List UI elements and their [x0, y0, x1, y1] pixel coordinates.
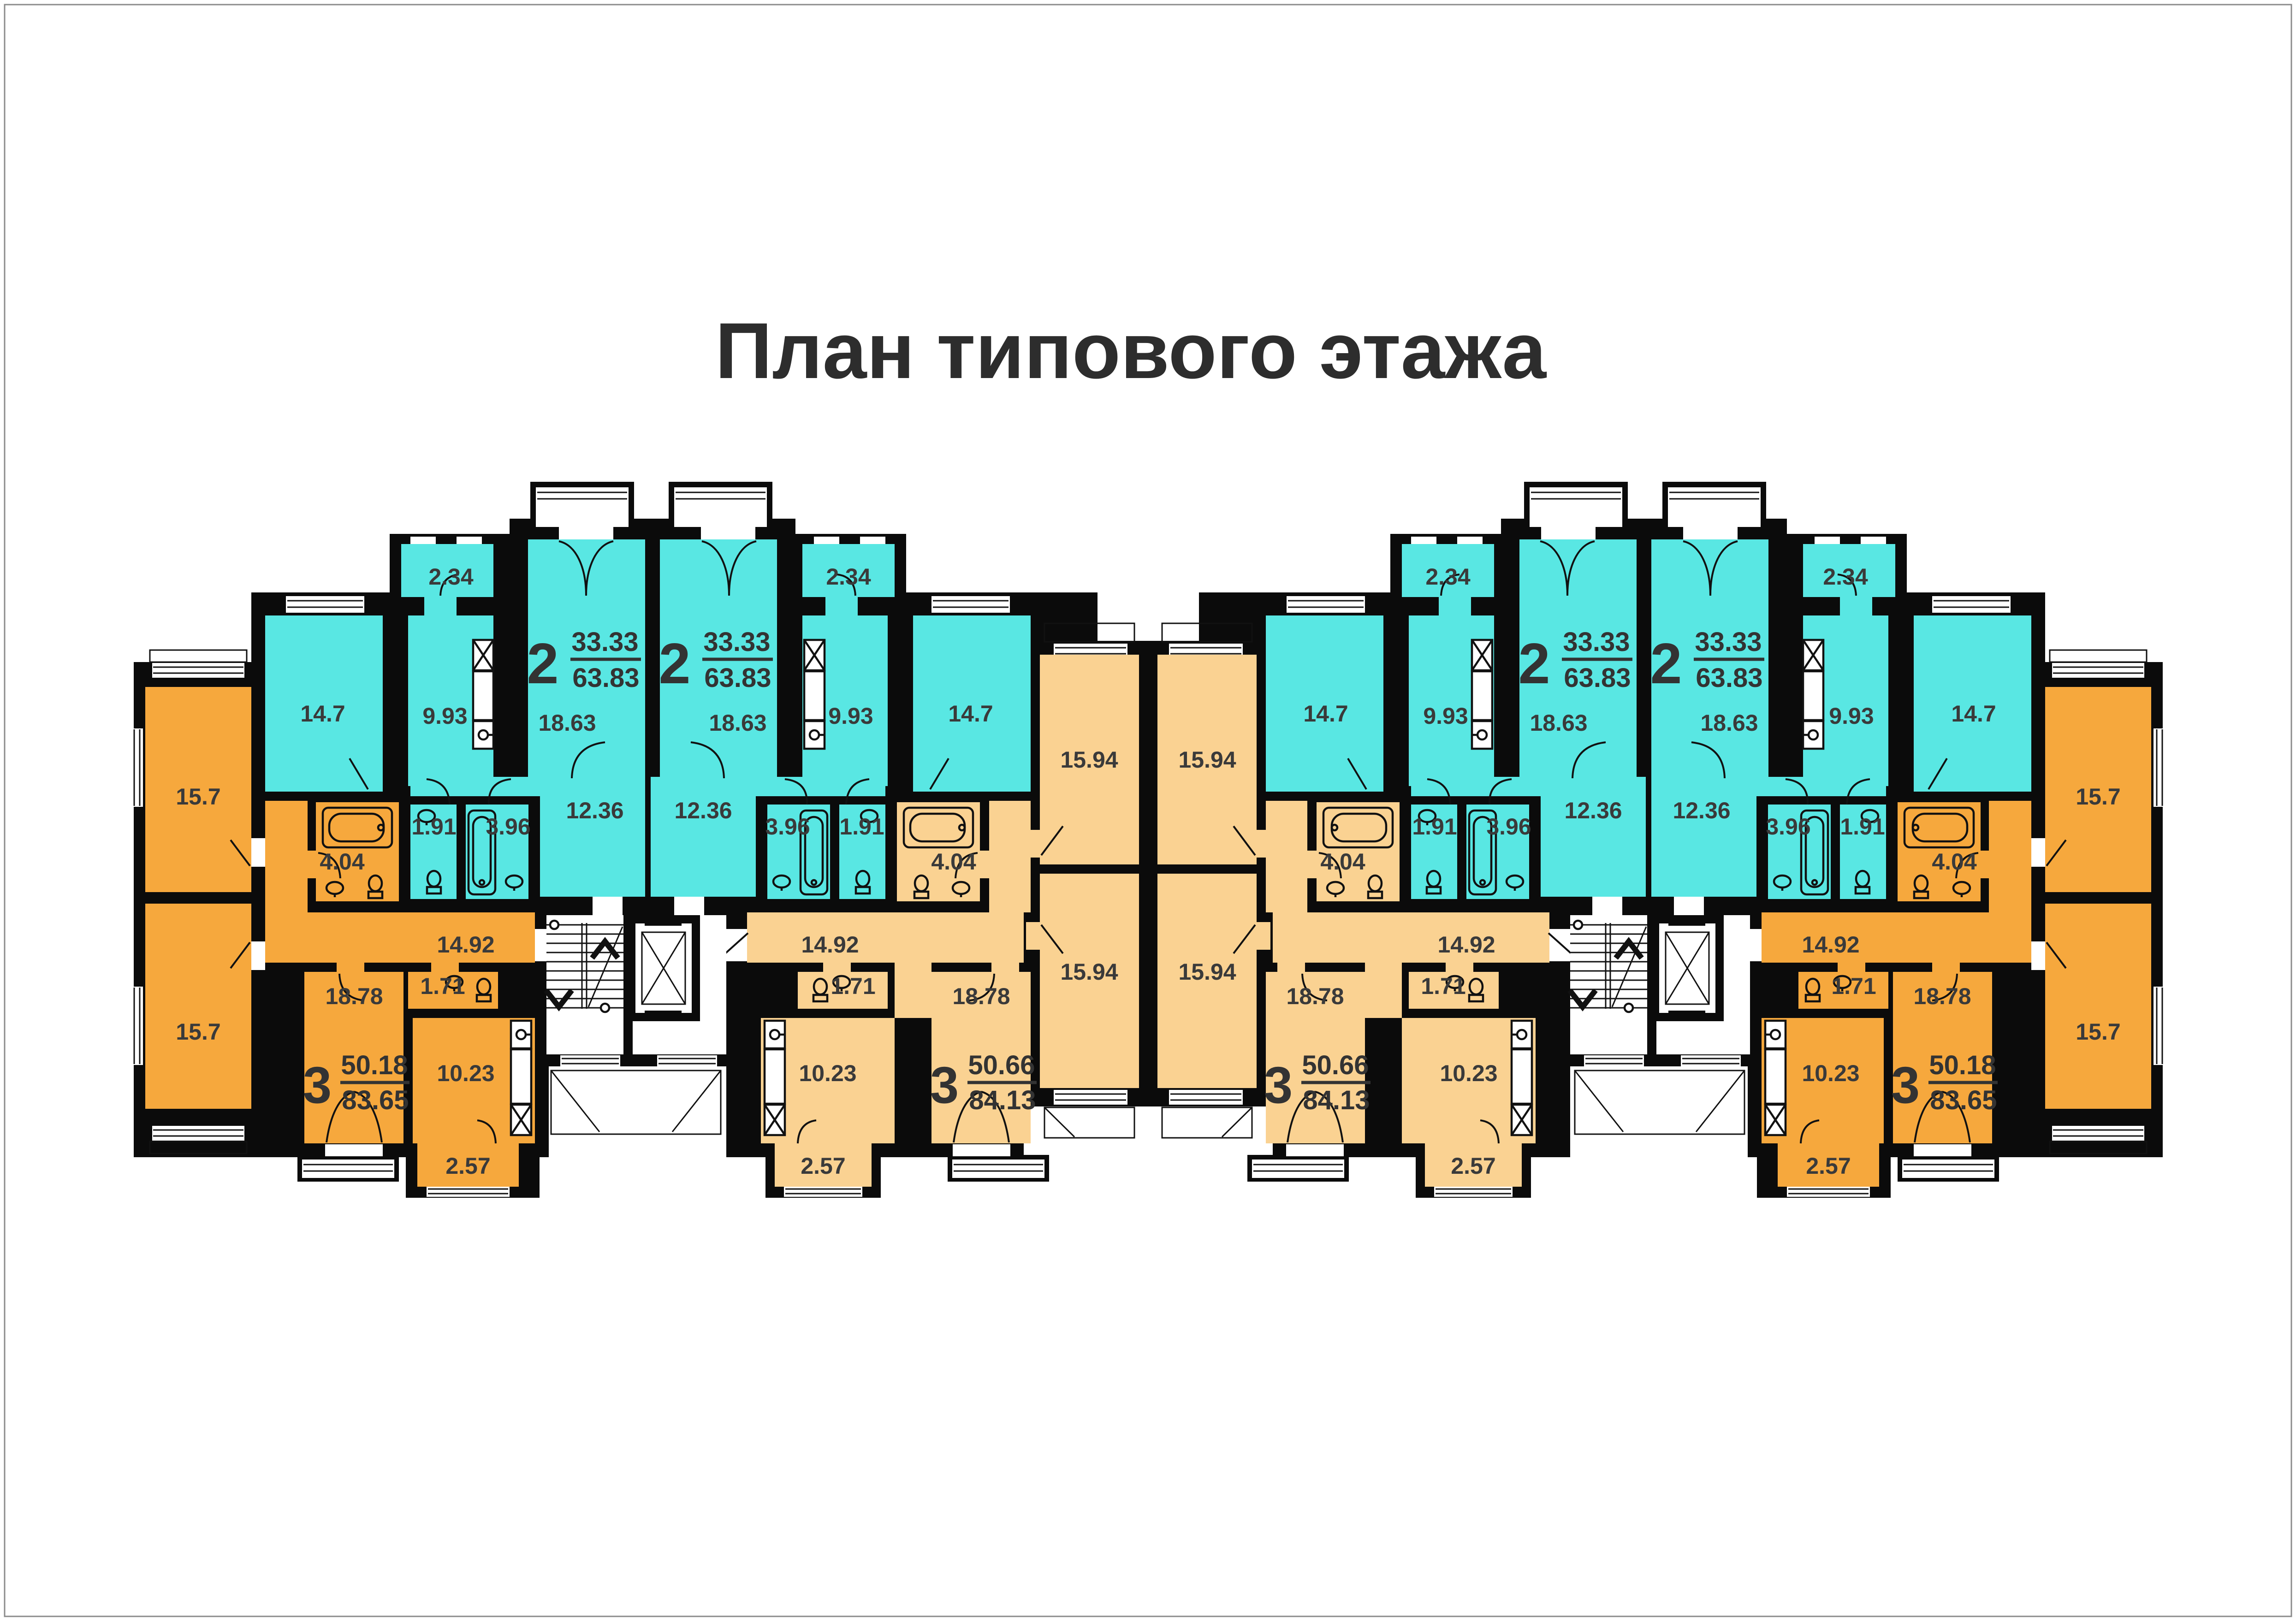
room-label: 18.63: [1700, 710, 1758, 736]
room-label: 2.34: [1425, 564, 1471, 590]
floor-plan-drawing: План типового этажа: [0, 0, 2296, 1621]
apartment-label-three-room-a: 3 50.18 83.65: [303, 1050, 409, 1115]
room-label: 3.96: [1766, 814, 1810, 840]
room-label: 18.78: [1286, 983, 1344, 1009]
svg-text:33.33: 33.33: [571, 627, 638, 657]
room-label: 15.94: [1060, 747, 1118, 773]
room-label: 18.63: [709, 710, 766, 736]
room-label: 14.92: [801, 932, 859, 958]
room-label: 14.7: [1303, 701, 1348, 727]
room-label: 15.7: [176, 784, 220, 810]
room-label: 3.96: [765, 814, 810, 840]
room-label: 3.96: [486, 814, 530, 840]
svg-text:3: 3: [1891, 1056, 1920, 1114]
room-label: 9.93: [1423, 703, 1468, 729]
room-label: 15.94: [1178, 747, 1236, 773]
svg-text:50.66: 50.66: [1302, 1050, 1369, 1080]
svg-text:63.83: 63.83: [704, 663, 771, 693]
room-label: 12.36: [566, 798, 623, 823]
svg-text:2: 2: [527, 632, 559, 696]
room-label: 14.92: [1802, 932, 1859, 958]
room-label: 9.93: [828, 703, 873, 729]
svg-text:2: 2: [1519, 632, 1550, 696]
svg-text:33.33: 33.33: [1563, 627, 1630, 657]
room-label: 2.57: [445, 1153, 490, 1179]
room-label: 15.94: [1178, 959, 1236, 985]
svg-text:33.33: 33.33: [1695, 627, 1762, 657]
svg-text:63.83: 63.83: [572, 663, 639, 693]
svg-text:50.18: 50.18: [341, 1050, 408, 1080]
room-label: 15.7: [2076, 1019, 2120, 1045]
room-label: 1.71: [420, 973, 465, 999]
room-label: 2.34: [1823, 564, 1868, 590]
apartment-label-three-room-b: 3 50.66 84.13: [1264, 1050, 1370, 1115]
room-label: 12.36: [674, 798, 732, 823]
room-label: 4.04: [1932, 849, 1977, 875]
room-label: 15.7: [2076, 784, 2120, 810]
room-label: 14.92: [1437, 932, 1495, 958]
room-label: 18.63: [1530, 710, 1587, 736]
room-label: 4.04: [931, 849, 976, 875]
room-label: 14.7: [1951, 701, 1996, 727]
room-label: 18.78: [325, 983, 383, 1009]
room-label: 9.93: [1829, 703, 1874, 729]
room-label: 3.96: [1486, 814, 1531, 840]
room-label: 1.91: [411, 814, 456, 840]
room-label: 1.91: [1840, 814, 1885, 840]
svg-text:3: 3: [1264, 1056, 1293, 1114]
svg-text:50.18: 50.18: [1929, 1050, 1996, 1080]
room-label: 1.71: [831, 973, 875, 999]
svg-text:63.83: 63.83: [1696, 663, 1762, 693]
svg-text:84.13: 84.13: [1303, 1085, 1370, 1115]
room-label: 10.23: [1440, 1060, 1497, 1086]
svg-text:2: 2: [659, 632, 691, 696]
svg-text:33.33: 33.33: [703, 627, 770, 657]
room-label: 14.7: [300, 701, 345, 727]
room-label: 12.36: [1564, 798, 1622, 823]
page-title: План типового этажа: [715, 307, 1547, 395]
room-label: 2.34: [826, 564, 871, 590]
room-label: 18.78: [1913, 983, 1971, 1009]
svg-text:50.66: 50.66: [968, 1050, 1035, 1080]
room-label: 15.7: [176, 1019, 220, 1045]
room-label: 1.71: [1831, 973, 1876, 999]
room-label: 2.57: [1806, 1153, 1851, 1179]
room-label: 12.36: [1673, 798, 1730, 823]
room-label: 18.63: [538, 710, 596, 736]
svg-text:84.13: 84.13: [969, 1085, 1036, 1115]
room-label: 4.04: [320, 849, 365, 875]
room-label: 9.93: [422, 703, 467, 729]
floor-plan-page: План типового этажа: [0, 0, 2296, 1621]
room-label: 15.94: [1060, 959, 1118, 985]
room-label: 1.91: [839, 814, 884, 840]
svg-text:3: 3: [303, 1056, 332, 1114]
room-label: 10.23: [437, 1060, 494, 1086]
room-label: 10.23: [799, 1060, 856, 1086]
room-label: 14.92: [437, 932, 494, 958]
svg-text:63.83: 63.83: [1564, 663, 1631, 693]
svg-text:83.65: 83.65: [342, 1085, 409, 1115]
apartment-label-three-room-b: 3 50.66 84.13: [930, 1050, 1037, 1115]
apartment-label-three-room-a: 3 50.18 83.65: [1891, 1050, 1998, 1115]
room-label: 10.23: [1802, 1060, 1859, 1086]
svg-text:2: 2: [1650, 632, 1682, 696]
room-label: 2.57: [1451, 1153, 1495, 1179]
room-label: 1.91: [1412, 814, 1457, 840]
room-label: 1.71: [1421, 973, 1465, 999]
room-label: 14.7: [948, 701, 993, 727]
svg-text:3: 3: [930, 1056, 959, 1114]
room-label: 18.78: [952, 983, 1010, 1009]
svg-text:83.65: 83.65: [1930, 1085, 1997, 1115]
room-label: 2.57: [801, 1153, 845, 1179]
room-label: 2.34: [428, 564, 474, 590]
room-label: 4.04: [1320, 849, 1365, 875]
